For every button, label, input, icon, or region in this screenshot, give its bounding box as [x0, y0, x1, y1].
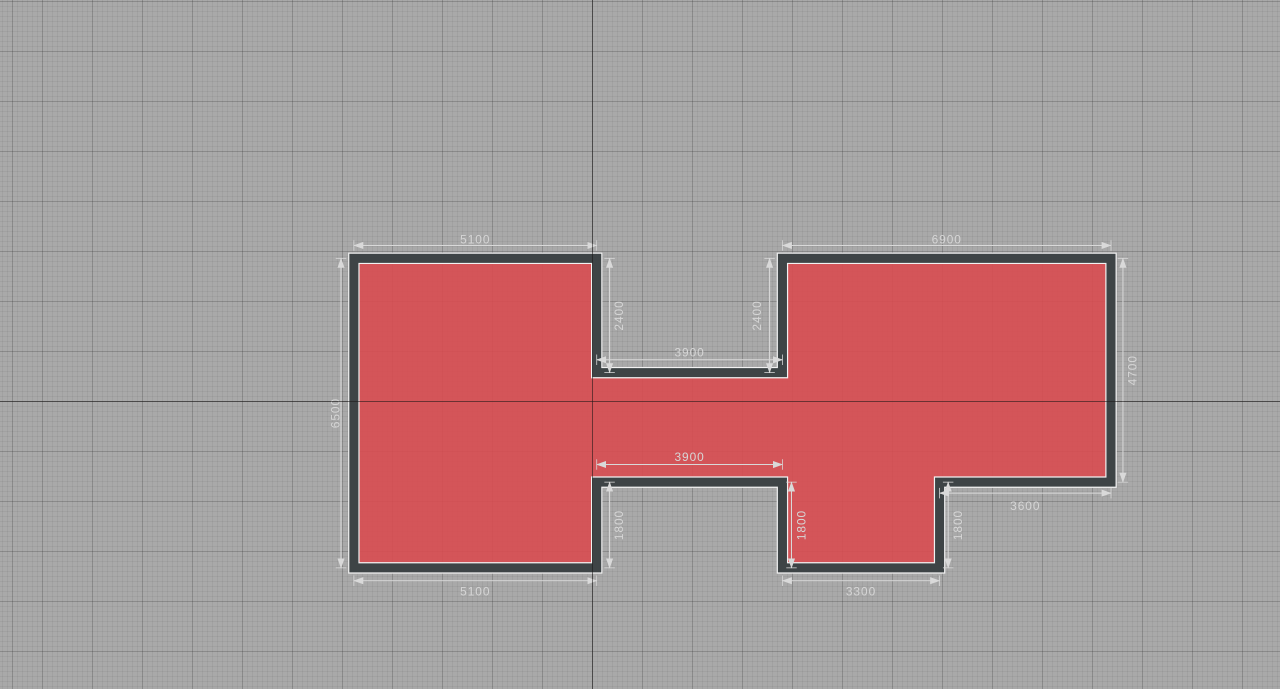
dimension-lower-notch-depth[interactable]: 1800: [604, 482, 626, 568]
dimension-bottom-projection-width[interactable]: 3300: [782, 575, 939, 598]
dimension-label: 1800: [951, 510, 965, 540]
dimension-label: 6500: [329, 398, 343, 428]
origin-axis-vertical: [592, 0, 593, 689]
dimension-label: 4700: [1126, 355, 1140, 385]
dimension-label: 2400: [750, 300, 764, 330]
dimension-upper-notch-left-depth[interactable]: 2400: [604, 258, 626, 372]
dimension-label: 5100: [460, 584, 490, 598]
dimension-left-height[interactable]: 6500: [329, 258, 347, 568]
dimension-upper-notch-width[interactable]: 3900: [597, 345, 783, 365]
dimension-label: 3300: [846, 584, 876, 598]
dimension-label: 2400: [612, 300, 626, 330]
plan-canvas[interactable]: 5100 6900 2400 2400: [0, 0, 1280, 689]
dimension-label: 3600: [1010, 499, 1040, 513]
dimension-right-lower-width[interactable]: 3600: [940, 488, 1111, 513]
dimension-bottom-left-width[interactable]: 5100: [354, 575, 597, 598]
dimension-label: 1800: [612, 510, 626, 540]
dimension-label: 6900: [932, 233, 962, 247]
dimension-right-step-height[interactable]: 1800: [943, 482, 965, 568]
dimension-label: 5100: [460, 233, 490, 247]
dimension-label: 3900: [674, 345, 704, 359]
dimension-right-height[interactable]: 4700: [1118, 258, 1140, 482]
room-floor[interactable]: [354, 258, 1111, 568]
origin-axis-horizontal: [0, 401, 1280, 402]
dimension-label: 3900: [674, 450, 704, 464]
floor-plan: 5100 6900 2400 2400: [311, 225, 1202, 625]
dimension-top-left-width[interactable]: 5100: [354, 233, 597, 251]
dimension-top-right-width[interactable]: 6900: [782, 233, 1111, 251]
dimension-label: 1800: [794, 510, 808, 540]
room[interactable]: [354, 258, 1111, 568]
dimension-upper-notch-right-depth[interactable]: 2400: [750, 258, 775, 372]
